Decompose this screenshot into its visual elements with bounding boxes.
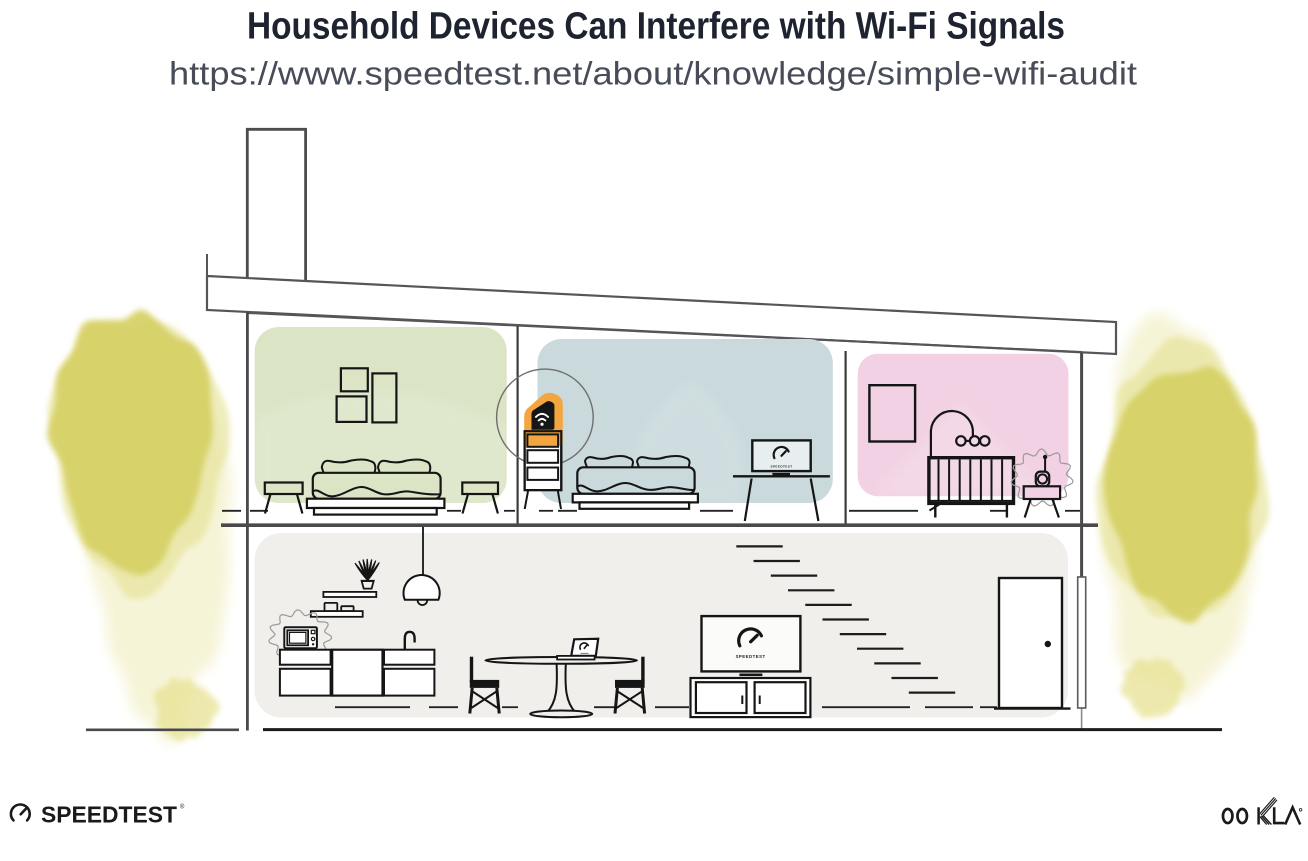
svg-text:SPEEDTEST: SPEEDTEST: [736, 654, 766, 659]
svg-text:®: ®: [180, 804, 185, 811]
svg-text:https://www.speedtest.net/abou: https://www.speedtest.net/about/knowledg…: [169, 56, 1137, 92]
svg-text:Household Devices Can Interfer: Household Devices Can Interfere with Wi-…: [247, 6, 1065, 48]
svg-text:SPEEDTEST: SPEEDTEST: [771, 464, 793, 468]
svg-text:SPEEDTEST: SPEEDTEST: [41, 802, 177, 828]
